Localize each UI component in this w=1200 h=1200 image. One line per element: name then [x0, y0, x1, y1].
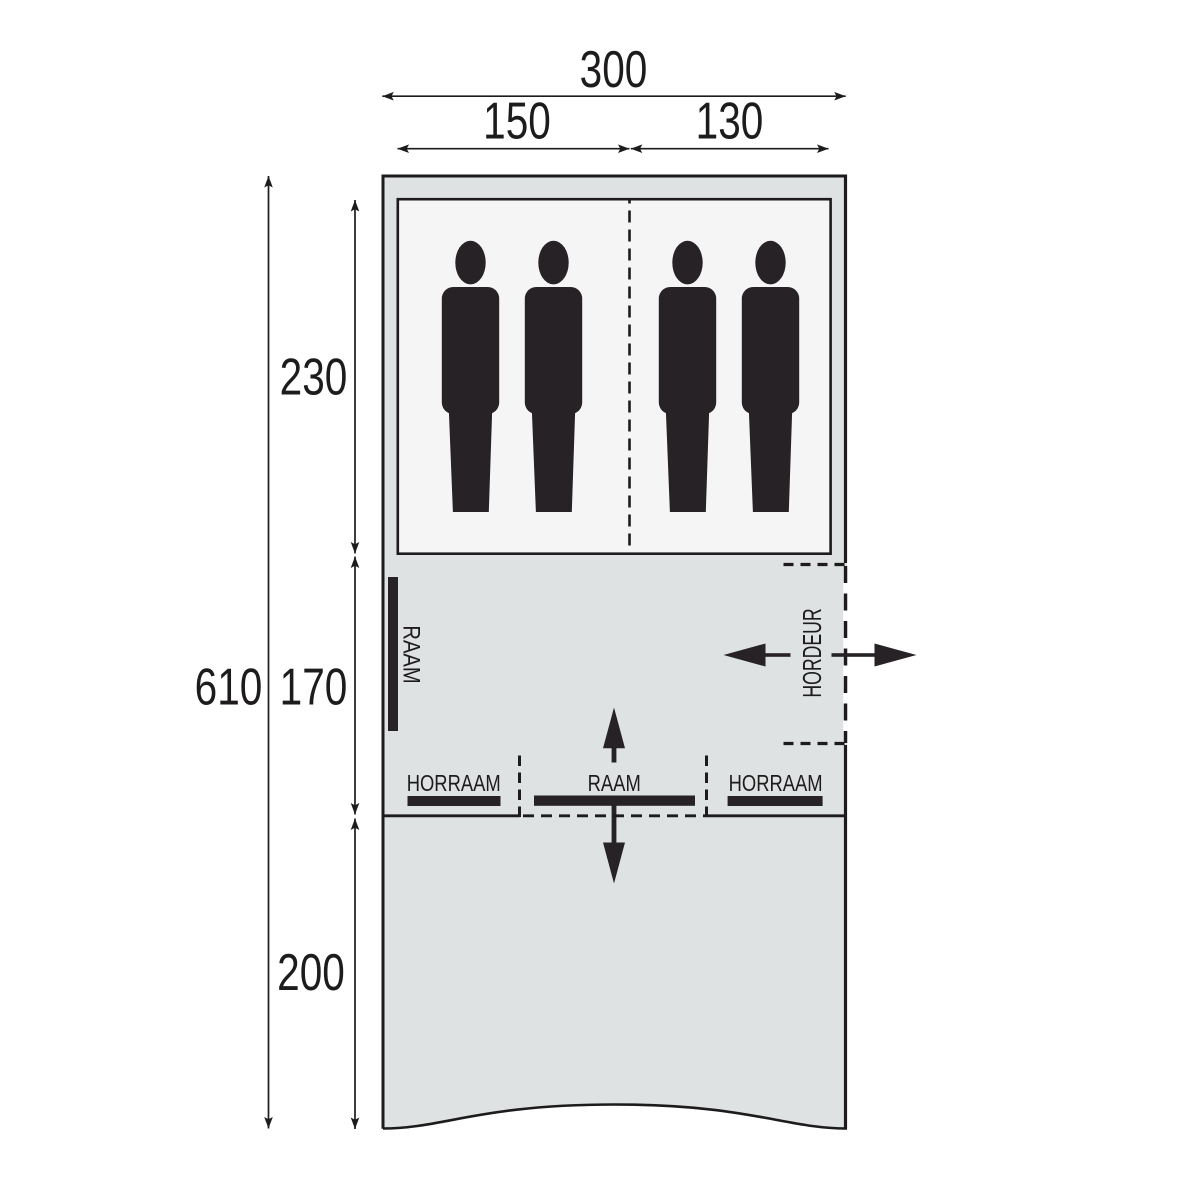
svg-text:HORDEUR: HORDEUR — [798, 608, 827, 697]
svg-text:130: 130 — [696, 92, 764, 150]
svg-text:230: 230 — [280, 348, 348, 406]
svg-text:HORRAAM: HORRAAM — [729, 771, 823, 796]
svg-text:150: 150 — [483, 92, 551, 150]
svg-text:RAAM: RAAM — [588, 771, 641, 796]
svg-text:300: 300 — [580, 40, 648, 98]
svg-text:610: 610 — [195, 658, 263, 716]
svg-text:HORRAAM: HORRAAM — [407, 771, 501, 796]
svg-text:170: 170 — [280, 658, 348, 716]
svg-text:200: 200 — [277, 943, 345, 1001]
svg-text:RAAM: RAAM — [398, 625, 425, 683]
